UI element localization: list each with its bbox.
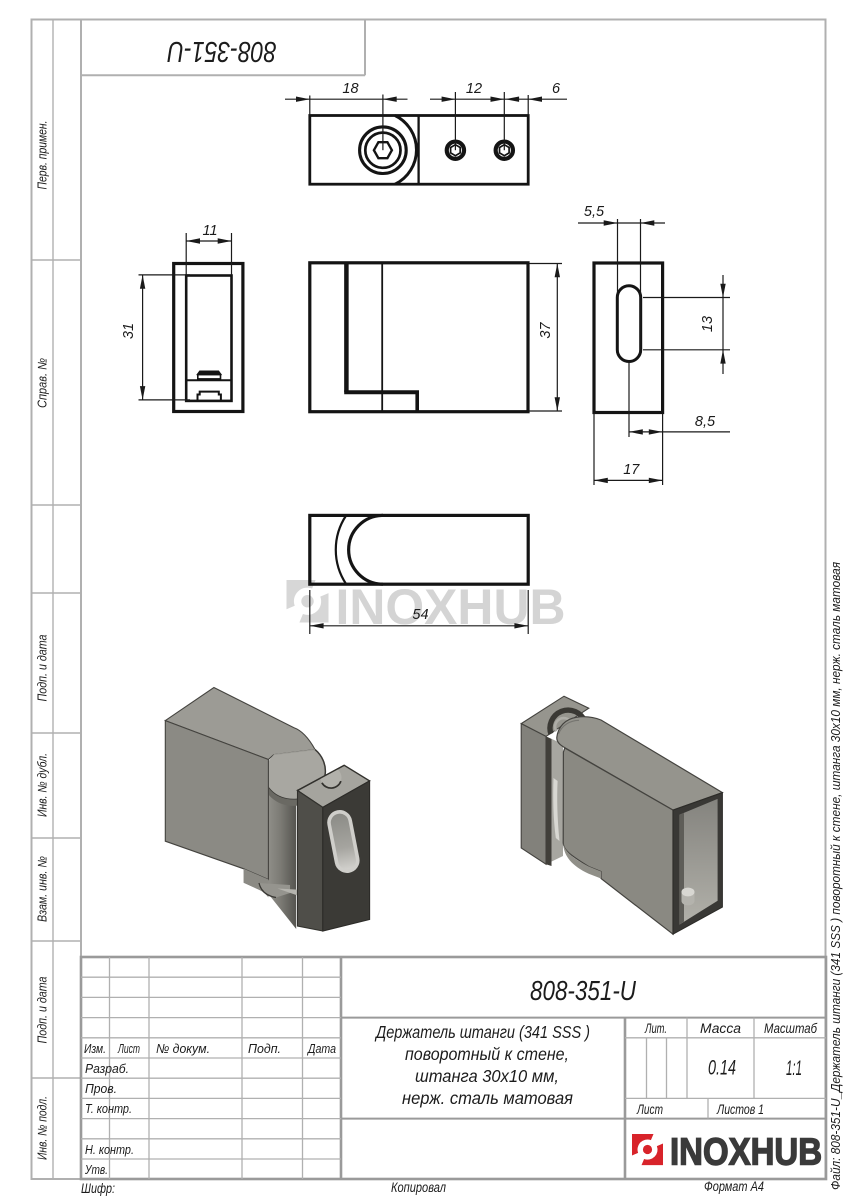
svg-text:Формат А4: Формат А4	[704, 1179, 764, 1194]
svg-text:18: 18	[342, 81, 358, 97]
svg-text:17: 17	[623, 462, 640, 478]
svg-text:6: 6	[552, 81, 561, 97]
svg-text:Шифр:: Шифр:	[81, 1181, 115, 1196]
svg-text:0.14: 0.14	[708, 1057, 736, 1080]
svg-text:Держатель штанги (341 SSS ): Держатель штанги (341 SSS )	[374, 1022, 590, 1042]
svg-text:Подп.: Подп.	[248, 1041, 281, 1056]
svg-text:INOXHUB: INOXHUB	[670, 1132, 822, 1174]
svg-text:Пров.: Пров.	[85, 1081, 117, 1096]
svg-text:13: 13	[700, 316, 716, 332]
svg-text:37: 37	[538, 322, 554, 339]
svg-text:Масса: Масса	[700, 1021, 741, 1036]
svg-text:Масштаб: Масштаб	[764, 1021, 817, 1036]
svg-text:Перв. примен.: Перв. примен.	[36, 121, 50, 190]
svg-text:12: 12	[466, 81, 482, 97]
svg-text:Лист: Лист	[636, 1102, 663, 1117]
svg-text:Т. контр.: Т. контр.	[85, 1101, 132, 1116]
svg-text:Подп. и дата: Подп. и дата	[36, 634, 50, 701]
svg-text:Копировал: Копировал	[391, 1180, 446, 1195]
svg-text:808-351-U: 808-351-U	[167, 35, 276, 67]
svg-text:Справ. №: Справ. №	[36, 358, 50, 408]
svg-text:Изм.: Изм.	[84, 1041, 106, 1056]
svg-text:Н. контр.: Н. контр.	[85, 1142, 134, 1157]
svg-text:31: 31	[121, 323, 137, 339]
svg-text:11: 11	[202, 223, 217, 239]
svg-text:нерж. сталь матовая: нерж. сталь матовая	[402, 1088, 573, 1108]
svg-text:5,5: 5,5	[584, 204, 605, 220]
svg-text:Дата: Дата	[306, 1041, 336, 1056]
svg-text:Подп. и дата: Подп. и дата	[36, 976, 50, 1043]
svg-text:Лит.: Лит.	[644, 1021, 667, 1036]
svg-text:Файл: 808-351-U_Держатель штан: Файл: 808-351-U_Держатель штанги (341 SS…	[828, 562, 843, 1190]
svg-text:Инв. № подл.: Инв. № подл.	[36, 1096, 50, 1160]
svg-text:8,5: 8,5	[695, 414, 716, 430]
svg-text:Утв.: Утв.	[84, 1162, 108, 1177]
svg-text:1:1: 1:1	[786, 1057, 802, 1080]
svg-text:808-351-U: 808-351-U	[530, 975, 636, 1006]
svg-text:Лист: Лист	[117, 1041, 140, 1056]
svg-text:Взам. инв. №: Взам. инв. №	[36, 856, 50, 922]
svg-text:штанга 30х10 мм,: штанга 30х10 мм,	[415, 1066, 559, 1086]
svg-text:Листов 1: Листов 1	[716, 1102, 764, 1117]
svg-text:54: 54	[412, 607, 428, 623]
svg-text:№ докум.: № докум.	[156, 1041, 210, 1056]
svg-text:INOXHUB: INOXHUB	[336, 579, 566, 635]
svg-text:Разраб.: Разраб.	[85, 1061, 129, 1076]
svg-text:поворотный к стене,: поворотный к стене,	[405, 1044, 569, 1064]
svg-text:Инв. № дубл.: Инв. № дубл.	[36, 753, 50, 817]
